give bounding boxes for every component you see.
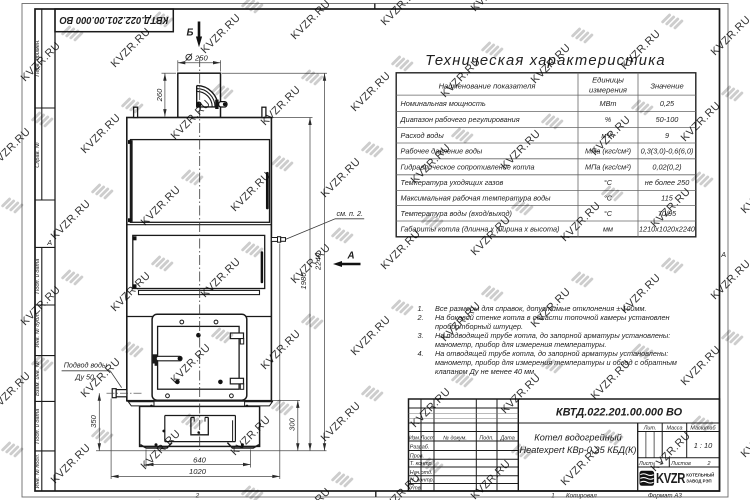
svg-text:Максимальная рабочая температу: Максимальная рабочая температура воды bbox=[401, 194, 552, 203]
svg-text:1.: 1. bbox=[418, 304, 424, 313]
svg-text:ЗАВОД РЭП: ЗАВОД РЭП bbox=[686, 478, 711, 483]
svg-text:3.: 3. bbox=[418, 331, 424, 340]
svg-text:Листов: Листов bbox=[670, 461, 691, 467]
svg-text:Подп. и дата: Подп. и дата bbox=[35, 259, 41, 294]
svg-text:1210х1020х2240: 1210х1020х2240 bbox=[639, 225, 695, 234]
svg-text:Копировал: Копировал bbox=[566, 493, 597, 500]
svg-text:2.: 2. bbox=[417, 313, 424, 322]
svg-text:А: А bbox=[346, 250, 354, 261]
svg-text:300: 300 bbox=[288, 417, 297, 430]
svg-text:Разраб.: Разраб. bbox=[410, 445, 430, 451]
svg-text:Габариты котла (длинна х ширин: Габариты котла (длинна х ширина х высота… bbox=[401, 225, 560, 234]
svg-text:МВт: МВт bbox=[599, 99, 616, 108]
svg-text:МПа (кгс/см²): МПа (кгс/см²) bbox=[585, 162, 631, 171]
svg-text:Формат А3: Формат А3 bbox=[648, 493, 682, 500]
svg-text:1 : 10: 1 : 10 bbox=[694, 441, 713, 450]
svg-text:На подводящей трубе котла, до: На подводящей трубе котла, до запорной а… bbox=[435, 331, 670, 340]
svg-text:0,25: 0,25 bbox=[660, 99, 675, 108]
svg-text:2: 2 bbox=[195, 493, 200, 500]
svg-text:Единицы: Единицы bbox=[592, 76, 624, 85]
svg-text:Подп.: Подп. bbox=[479, 435, 493, 441]
svg-text:клапаном Ду не менее 40 мм.: клапаном Ду не менее 40 мм. bbox=[435, 367, 536, 376]
svg-text:0,3(3,0)-0,6(6,0): 0,3(3,0)-0,6(6,0) bbox=[641, 147, 694, 156]
svg-text:Температура воды (вход/выход): Температура воды (вход/выход) bbox=[401, 209, 512, 218]
svg-text:50-100: 50-100 bbox=[656, 115, 679, 124]
svg-text:А: А bbox=[720, 250, 726, 259]
svg-text:1020: 1020 bbox=[189, 467, 207, 476]
svg-text:350: 350 bbox=[89, 414, 98, 427]
svg-text:Диапазон рабочего регулировани: Диапазон рабочего регулирования bbox=[400, 115, 520, 124]
svg-text:А: А bbox=[46, 238, 52, 247]
svg-text:°С: °С bbox=[604, 209, 613, 218]
svg-text:Масса: Масса bbox=[667, 426, 683, 432]
svg-text:2: 2 bbox=[707, 461, 711, 467]
svg-text:Пров.: Пров. bbox=[410, 453, 424, 459]
svg-text:Инв. № подл.: Инв. № подл. bbox=[35, 454, 41, 489]
svg-text:Изм.: Изм. bbox=[409, 435, 421, 441]
svg-text:измерения: измерения bbox=[589, 85, 627, 94]
svg-text:КВТД.022.201.00.000 ВО: КВТД.022.201.00.000 ВО bbox=[556, 406, 683, 418]
svg-text:%: % bbox=[605, 115, 612, 124]
svg-text:0,02(0,2): 0,02(0,2) bbox=[652, 162, 681, 171]
svg-text:КОТЕЛЬНЫЙ: КОТЕЛЬНЫЙ bbox=[686, 472, 714, 477]
svg-text:°С: °С bbox=[604, 178, 613, 187]
svg-text:Подп. и дата: Подп. и дата bbox=[35, 409, 41, 444]
svg-text:Справ. №: Справ. № bbox=[35, 142, 41, 167]
svg-text:Лист: Лист bbox=[420, 435, 435, 441]
svg-text:Лит.: Лит. bbox=[643, 426, 657, 432]
svg-text:Расход воды: Расход воды bbox=[401, 131, 445, 140]
svg-text:манометр, прибор для измерения: манометр, прибор для измерения температу… bbox=[435, 340, 607, 349]
svg-text:260: 260 bbox=[155, 88, 164, 102]
svg-text:см. п. 2.: см. п. 2. bbox=[337, 209, 363, 218]
svg-text:не более 250: не более 250 bbox=[645, 178, 690, 187]
svg-text:мм: мм bbox=[603, 225, 613, 234]
svg-text:Дата: Дата bbox=[499, 435, 514, 441]
svg-text:640: 640 bbox=[193, 455, 206, 464]
svg-text:1: 1 bbox=[551, 493, 554, 500]
svg-text:Б: Б bbox=[187, 27, 194, 38]
svg-text:9: 9 bbox=[665, 131, 669, 140]
svg-text:KVZR: KVZR bbox=[656, 471, 686, 487]
svg-text:№ докум.: № докум. bbox=[443, 435, 467, 441]
svg-text:Номинальная мощность: Номинальная мощность bbox=[401, 99, 486, 108]
svg-text:4.: 4. bbox=[418, 349, 424, 358]
svg-text:Heatexpert КВр-0,25 КБД(К): Heatexpert КВр-0,25 КБД(К) bbox=[520, 445, 637, 455]
svg-text:Значение: Значение bbox=[650, 82, 683, 91]
